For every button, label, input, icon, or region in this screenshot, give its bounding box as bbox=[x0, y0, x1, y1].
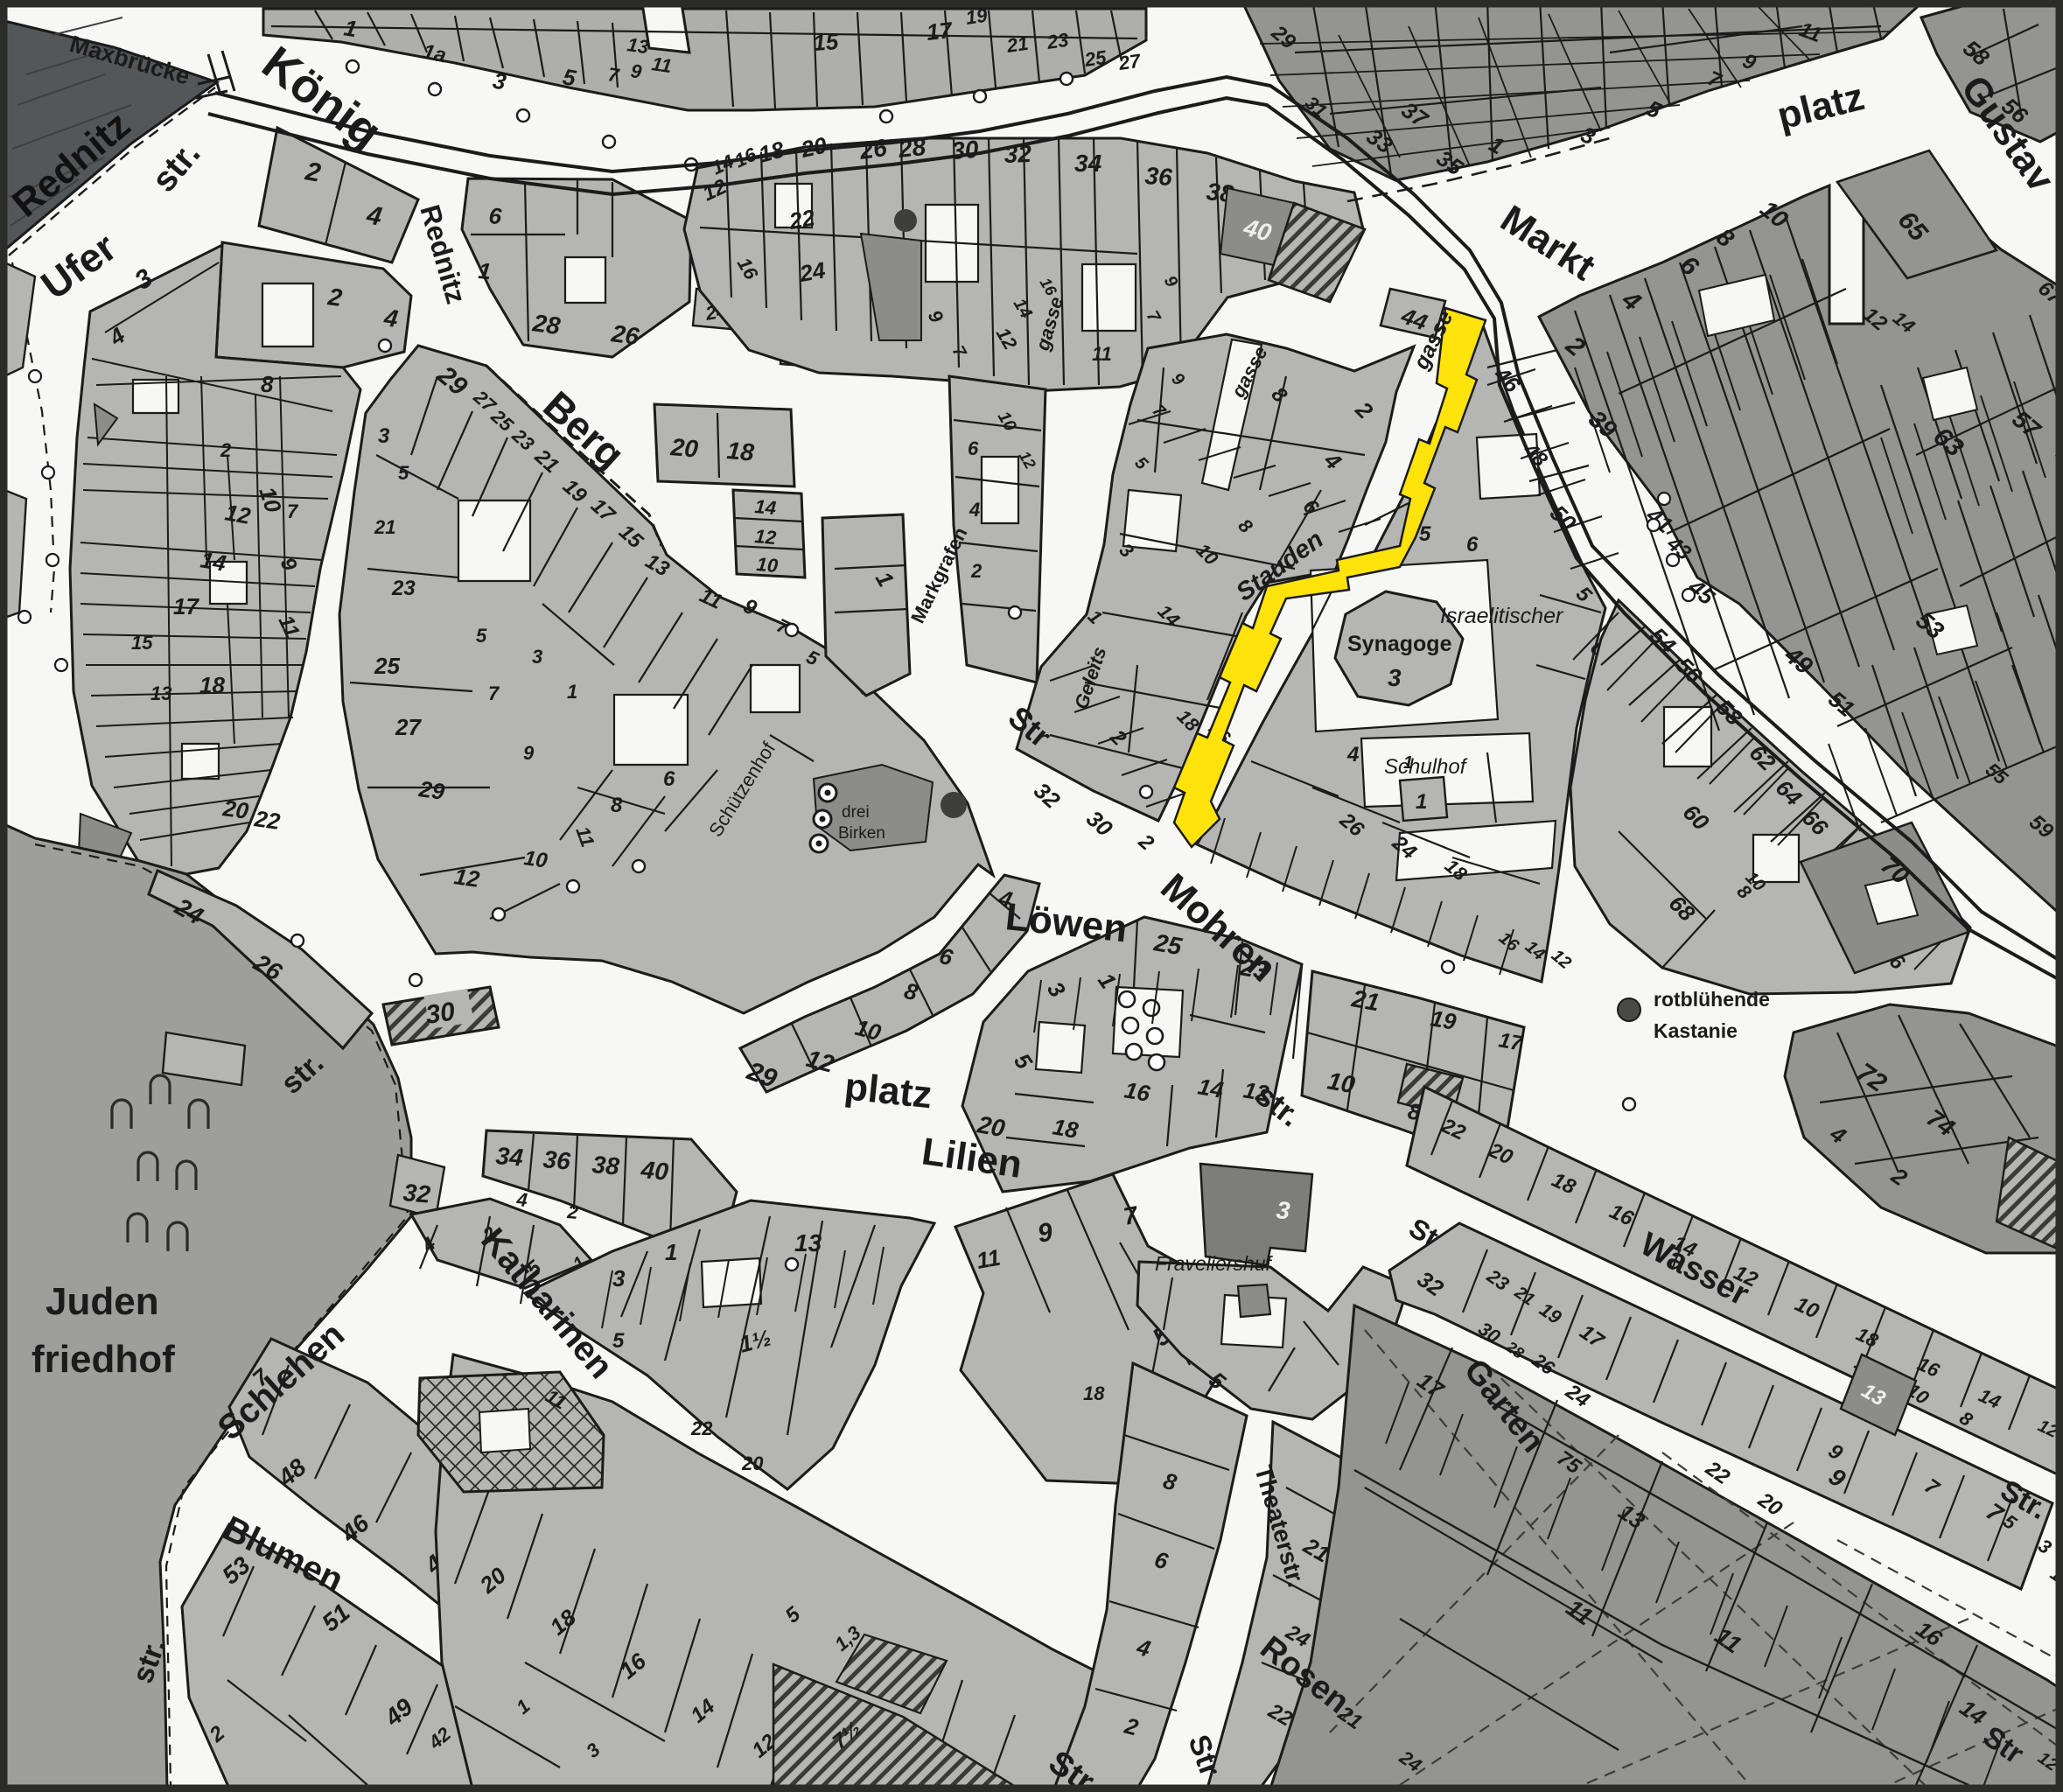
svg-text:22: 22 bbox=[252, 805, 282, 835]
svg-text:23: 23 bbox=[391, 577, 416, 600]
svg-text:30: 30 bbox=[950, 136, 980, 164]
svg-text:3: 3 bbox=[612, 1265, 626, 1291]
svg-text:9: 9 bbox=[523, 742, 535, 764]
svg-text:36: 36 bbox=[1144, 162, 1174, 191]
svg-text:18: 18 bbox=[1051, 1113, 1080, 1144]
svg-text:21: 21 bbox=[1004, 32, 1030, 57]
svg-text:19: 19 bbox=[1429, 1004, 1458, 1035]
svg-text:4: 4 bbox=[969, 499, 980, 521]
svg-text:10: 10 bbox=[756, 553, 780, 577]
svg-text:32: 32 bbox=[402, 1179, 431, 1208]
svg-text:14: 14 bbox=[1196, 1073, 1226, 1103]
svg-text:40: 40 bbox=[639, 1156, 669, 1186]
svg-text:14: 14 bbox=[199, 546, 228, 577]
svg-text:3: 3 bbox=[1388, 664, 1402, 691]
svg-text:25: 25 bbox=[1151, 928, 1184, 960]
svg-text:drei: drei bbox=[842, 803, 870, 822]
svg-text:28: 28 bbox=[530, 309, 563, 339]
svg-text:13: 13 bbox=[626, 33, 650, 58]
svg-text:17: 17 bbox=[925, 17, 954, 45]
svg-text:3: 3 bbox=[378, 424, 390, 448]
svg-text:11: 11 bbox=[975, 1244, 1003, 1274]
svg-text:14: 14 bbox=[754, 495, 778, 519]
svg-text:rotblühende: rotblühende bbox=[1654, 988, 1770, 1011]
svg-text:Kastanie: Kastanie bbox=[1654, 1019, 1738, 1042]
svg-text:20: 20 bbox=[668, 433, 699, 463]
svg-text:20: 20 bbox=[220, 794, 250, 824]
svg-text:5: 5 bbox=[476, 625, 487, 647]
svg-text:24: 24 bbox=[797, 256, 828, 287]
svg-text:3: 3 bbox=[1275, 1196, 1291, 1224]
svg-text:34: 34 bbox=[1074, 150, 1102, 177]
svg-text:7: 7 bbox=[287, 500, 299, 522]
svg-text:Schulhof: Schulhof bbox=[1384, 755, 1468, 779]
svg-text:friedhof: friedhof bbox=[31, 1338, 175, 1381]
svg-text:6: 6 bbox=[968, 437, 979, 459]
svg-text:12: 12 bbox=[452, 863, 481, 892]
svg-text:12: 12 bbox=[754, 525, 778, 549]
svg-text:25: 25 bbox=[1082, 46, 1108, 71]
svg-text:22: 22 bbox=[787, 204, 817, 234]
svg-text:21: 21 bbox=[374, 516, 395, 538]
svg-text:1: 1 bbox=[1416, 790, 1427, 814]
svg-text:18: 18 bbox=[199, 672, 225, 698]
svg-text:6: 6 bbox=[1466, 533, 1479, 556]
svg-text:5: 5 bbox=[612, 1329, 625, 1353]
svg-text:19: 19 bbox=[964, 4, 989, 29]
svg-text:15: 15 bbox=[131, 632, 153, 654]
svg-text:16: 16 bbox=[1122, 1076, 1152, 1107]
svg-text:23: 23 bbox=[1045, 29, 1070, 53]
svg-text:12: 12 bbox=[223, 499, 253, 529]
svg-text:Birken: Birken bbox=[838, 824, 885, 843]
svg-text:6: 6 bbox=[663, 767, 675, 791]
svg-text:27: 27 bbox=[395, 714, 422, 740]
svg-text:5: 5 bbox=[398, 462, 409, 484]
svg-text:21: 21 bbox=[1349, 984, 1381, 1016]
svg-text:7: 7 bbox=[488, 682, 500, 704]
svg-text:1: 1 bbox=[665, 1239, 677, 1265]
svg-text:29: 29 bbox=[416, 775, 446, 805]
svg-text:13: 13 bbox=[150, 682, 171, 704]
svg-text:1: 1 bbox=[477, 257, 492, 284]
svg-text:18: 18 bbox=[725, 437, 755, 466]
svg-text:Israelitischer: Israelitischer bbox=[1440, 604, 1564, 628]
svg-text:1: 1 bbox=[567, 681, 577, 703]
svg-text:8: 8 bbox=[261, 371, 274, 397]
svg-text:10: 10 bbox=[1325, 1067, 1357, 1098]
svg-text:26: 26 bbox=[609, 319, 641, 350]
svg-text:1a: 1a bbox=[421, 39, 449, 67]
svg-text:15: 15 bbox=[812, 28, 839, 56]
svg-text:Juden: Juden bbox=[45, 1280, 159, 1323]
svg-text:4: 4 bbox=[1346, 743, 1359, 766]
svg-text:17: 17 bbox=[173, 593, 199, 619]
svg-text:11: 11 bbox=[1092, 343, 1112, 365]
svg-text:platz: platz bbox=[843, 1065, 934, 1116]
svg-text:30: 30 bbox=[423, 997, 457, 1030]
svg-text:2: 2 bbox=[220, 439, 232, 461]
svg-text:3: 3 bbox=[532, 646, 542, 668]
svg-text:13: 13 bbox=[794, 1229, 822, 1256]
svg-text:11: 11 bbox=[650, 52, 673, 77]
svg-text:25: 25 bbox=[374, 653, 400, 679]
svg-text:8: 8 bbox=[611, 794, 623, 817]
svg-text:26: 26 bbox=[857, 134, 890, 164]
svg-text:2: 2 bbox=[970, 560, 983, 582]
svg-text:18: 18 bbox=[1083, 1382, 1105, 1404]
svg-text:36: 36 bbox=[542, 1145, 571, 1175]
svg-text:Synagoge: Synagoge bbox=[1347, 632, 1452, 656]
svg-text:22: 22 bbox=[690, 1417, 713, 1439]
svg-text:Fraveliershuf: Fraveliershuf bbox=[1155, 1252, 1274, 1275]
svg-text:34: 34 bbox=[494, 1142, 524, 1172]
svg-text:10: 10 bbox=[522, 846, 549, 873]
svg-text:38: 38 bbox=[591, 1151, 620, 1180]
svg-text:20: 20 bbox=[741, 1452, 764, 1474]
